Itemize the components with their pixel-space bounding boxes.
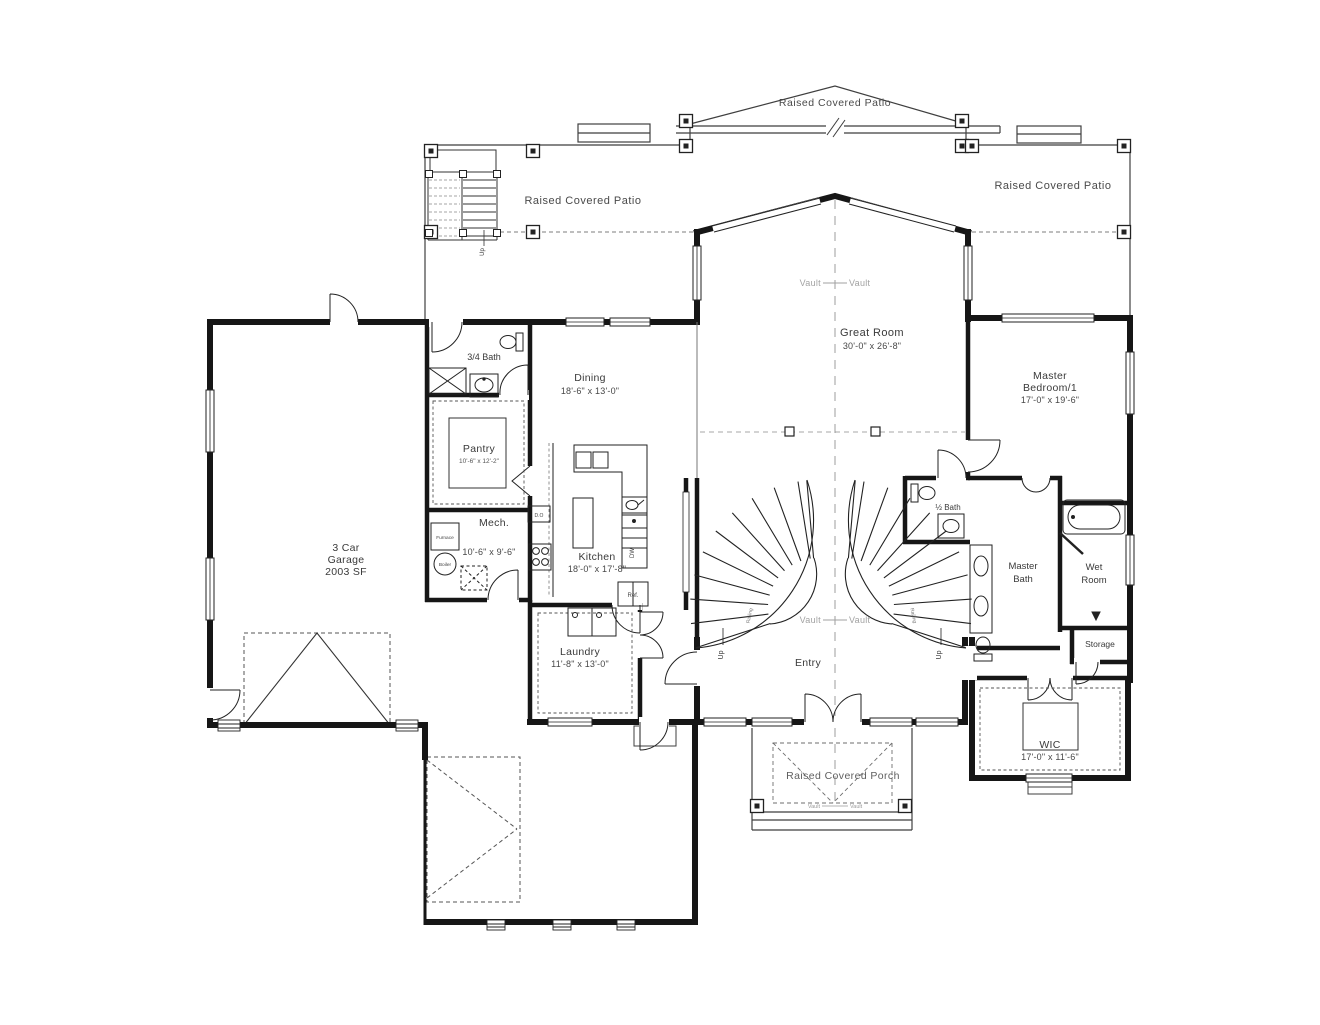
great-room-dims: 30'-0" x 26'-8" xyxy=(843,341,901,351)
porch-label: Raised Covered Porch xyxy=(786,770,900,782)
kitchen-fixtures xyxy=(528,443,648,606)
master-bedroom-label-1: Master xyxy=(1033,370,1067,382)
great-room-break-line xyxy=(700,427,965,436)
wic-label: WIC xyxy=(1039,739,1060,751)
kitchen-dims: 18'-0" x 17'-8" xyxy=(568,564,626,574)
entry-label: Entry xyxy=(795,657,821,669)
garage-door-template xyxy=(244,633,520,902)
great-room-label: Great Room xyxy=(840,327,904,339)
vault-label-right: Vault xyxy=(850,804,863,810)
floor-plan-page: Raised Covered Patio Raised Covered Pati… xyxy=(0,0,1320,1020)
bath34-fixtures xyxy=(429,333,523,397)
laundry-dims: 11'-8" x 13'-0" xyxy=(551,659,609,669)
master-bedroom-dims: 17'-0" x 19'-6" xyxy=(1021,395,1079,405)
dining-dims: 18'-6" x 13'-0" xyxy=(561,386,619,396)
vault-label-right: Vault xyxy=(849,278,871,288)
master-bath-label-1: Master xyxy=(1008,561,1037,572)
patio-gable-label: Raised Covered Patio xyxy=(779,97,891,109)
stair-up-label-right: Up xyxy=(936,650,943,659)
patio-stair-up-label: Up xyxy=(480,248,486,256)
stair-up-label-left: Up xyxy=(718,650,725,659)
wet-room-fixtures xyxy=(1060,500,1125,620)
wet-room-label-2: Room xyxy=(1081,575,1106,586)
patio-right-label: Raised Covered Patio xyxy=(994,180,1111,192)
master-bedroom-label-2: Bedroom/1 xyxy=(1023,382,1077,394)
master-bath-label-2: Bath xyxy=(1013,574,1033,585)
half-bath-label: ½ Bath xyxy=(935,503,960,512)
patio-left-label: Raised Covered Patio xyxy=(524,195,641,207)
porch-vault-annotation: Vault Vault xyxy=(808,804,863,810)
kitchen-label: Kitchen xyxy=(578,551,615,563)
dining-label: Dining xyxy=(574,372,606,384)
boiler-label: Boiler xyxy=(439,562,452,568)
curved-stair-left xyxy=(690,480,816,648)
garage-label-3: 2003 SF xyxy=(325,566,367,578)
dishwasher-label: DW xyxy=(630,548,636,558)
vault-label-left: Vault xyxy=(800,278,822,288)
storage-label: Storage xyxy=(1085,639,1115,649)
bath34-label: 3/4 Bath xyxy=(467,352,501,362)
refrigerator-label: Ref. xyxy=(627,593,638,599)
garage-label-1: 3 Car xyxy=(332,542,359,554)
vault-label-left: Vault xyxy=(808,804,821,810)
vault-label-left: Vault xyxy=(800,615,822,625)
wet-room-label-1: Wet xyxy=(1086,562,1103,573)
buffet-inset xyxy=(683,492,689,592)
mech-dims: 10'-6" x 9'-6" xyxy=(462,547,515,557)
mech-label: Mech. xyxy=(479,517,509,529)
vault-label-right: Vault xyxy=(849,615,871,625)
pantry-label: Pantry xyxy=(463,443,496,455)
furnace-label: Furnace xyxy=(436,535,454,541)
floor-plan-drawing: Raised Covered Patio Raised Covered Pati… xyxy=(0,0,1320,1020)
garage-label-2: Garage xyxy=(328,554,365,566)
pantry-dims: 10'-6" x 12'-2" xyxy=(459,458,500,465)
wic-dims: 17'-0" x 11'-6" xyxy=(1021,752,1079,762)
double-oven-label: D.O xyxy=(535,513,544,519)
laundry-label: Laundry xyxy=(560,646,600,658)
prow-windows xyxy=(712,198,956,232)
